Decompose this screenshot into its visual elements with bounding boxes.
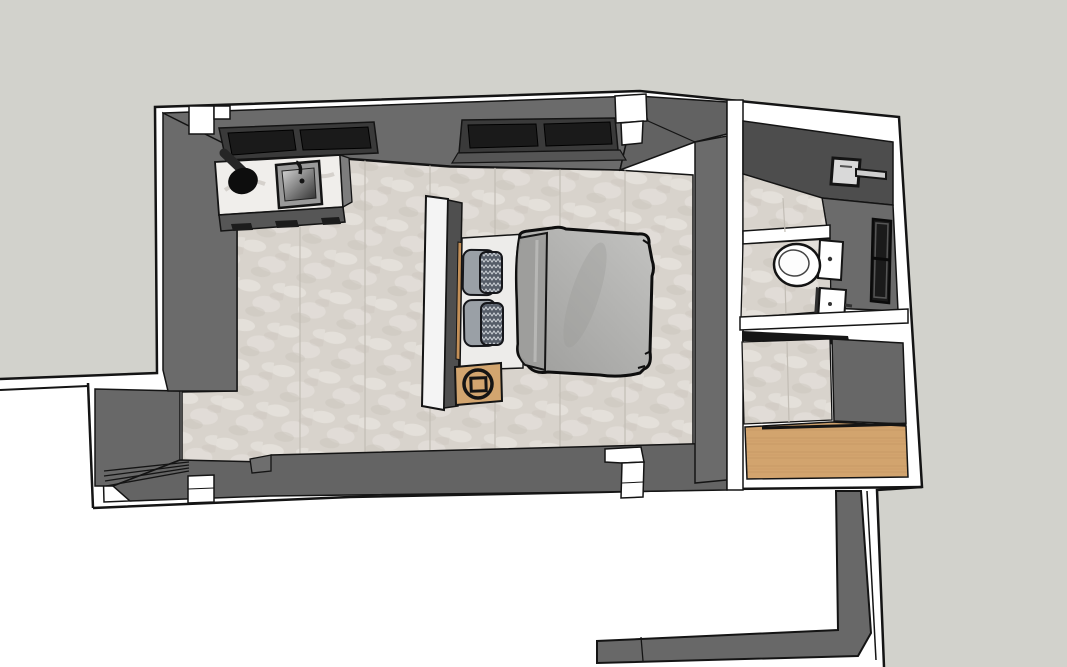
nightstand xyxy=(455,363,502,405)
pillow-stack-1 xyxy=(463,250,502,296)
bathroom-window xyxy=(871,219,891,303)
window-above-counter xyxy=(219,122,378,160)
pillar-bottom-center-top xyxy=(605,447,644,463)
pillar-top-left xyxy=(189,106,214,134)
duvet-fold xyxy=(516,233,547,370)
pillow-stack-2 xyxy=(464,300,503,347)
window-top-center xyxy=(452,118,626,163)
divider-wall-cut xyxy=(727,100,743,490)
closet-entry xyxy=(742,331,908,479)
pillar-bottom-center-front xyxy=(621,462,644,498)
bathroom xyxy=(740,121,908,330)
pillar-top-center xyxy=(615,94,647,123)
render-viewport xyxy=(0,0,1067,667)
closet-right-wall xyxy=(832,339,906,424)
floorplan-render xyxy=(0,0,1067,667)
closet-floor-wood xyxy=(745,422,908,479)
divider-wall-face xyxy=(695,136,727,483)
kitchenette-counter xyxy=(215,153,352,231)
